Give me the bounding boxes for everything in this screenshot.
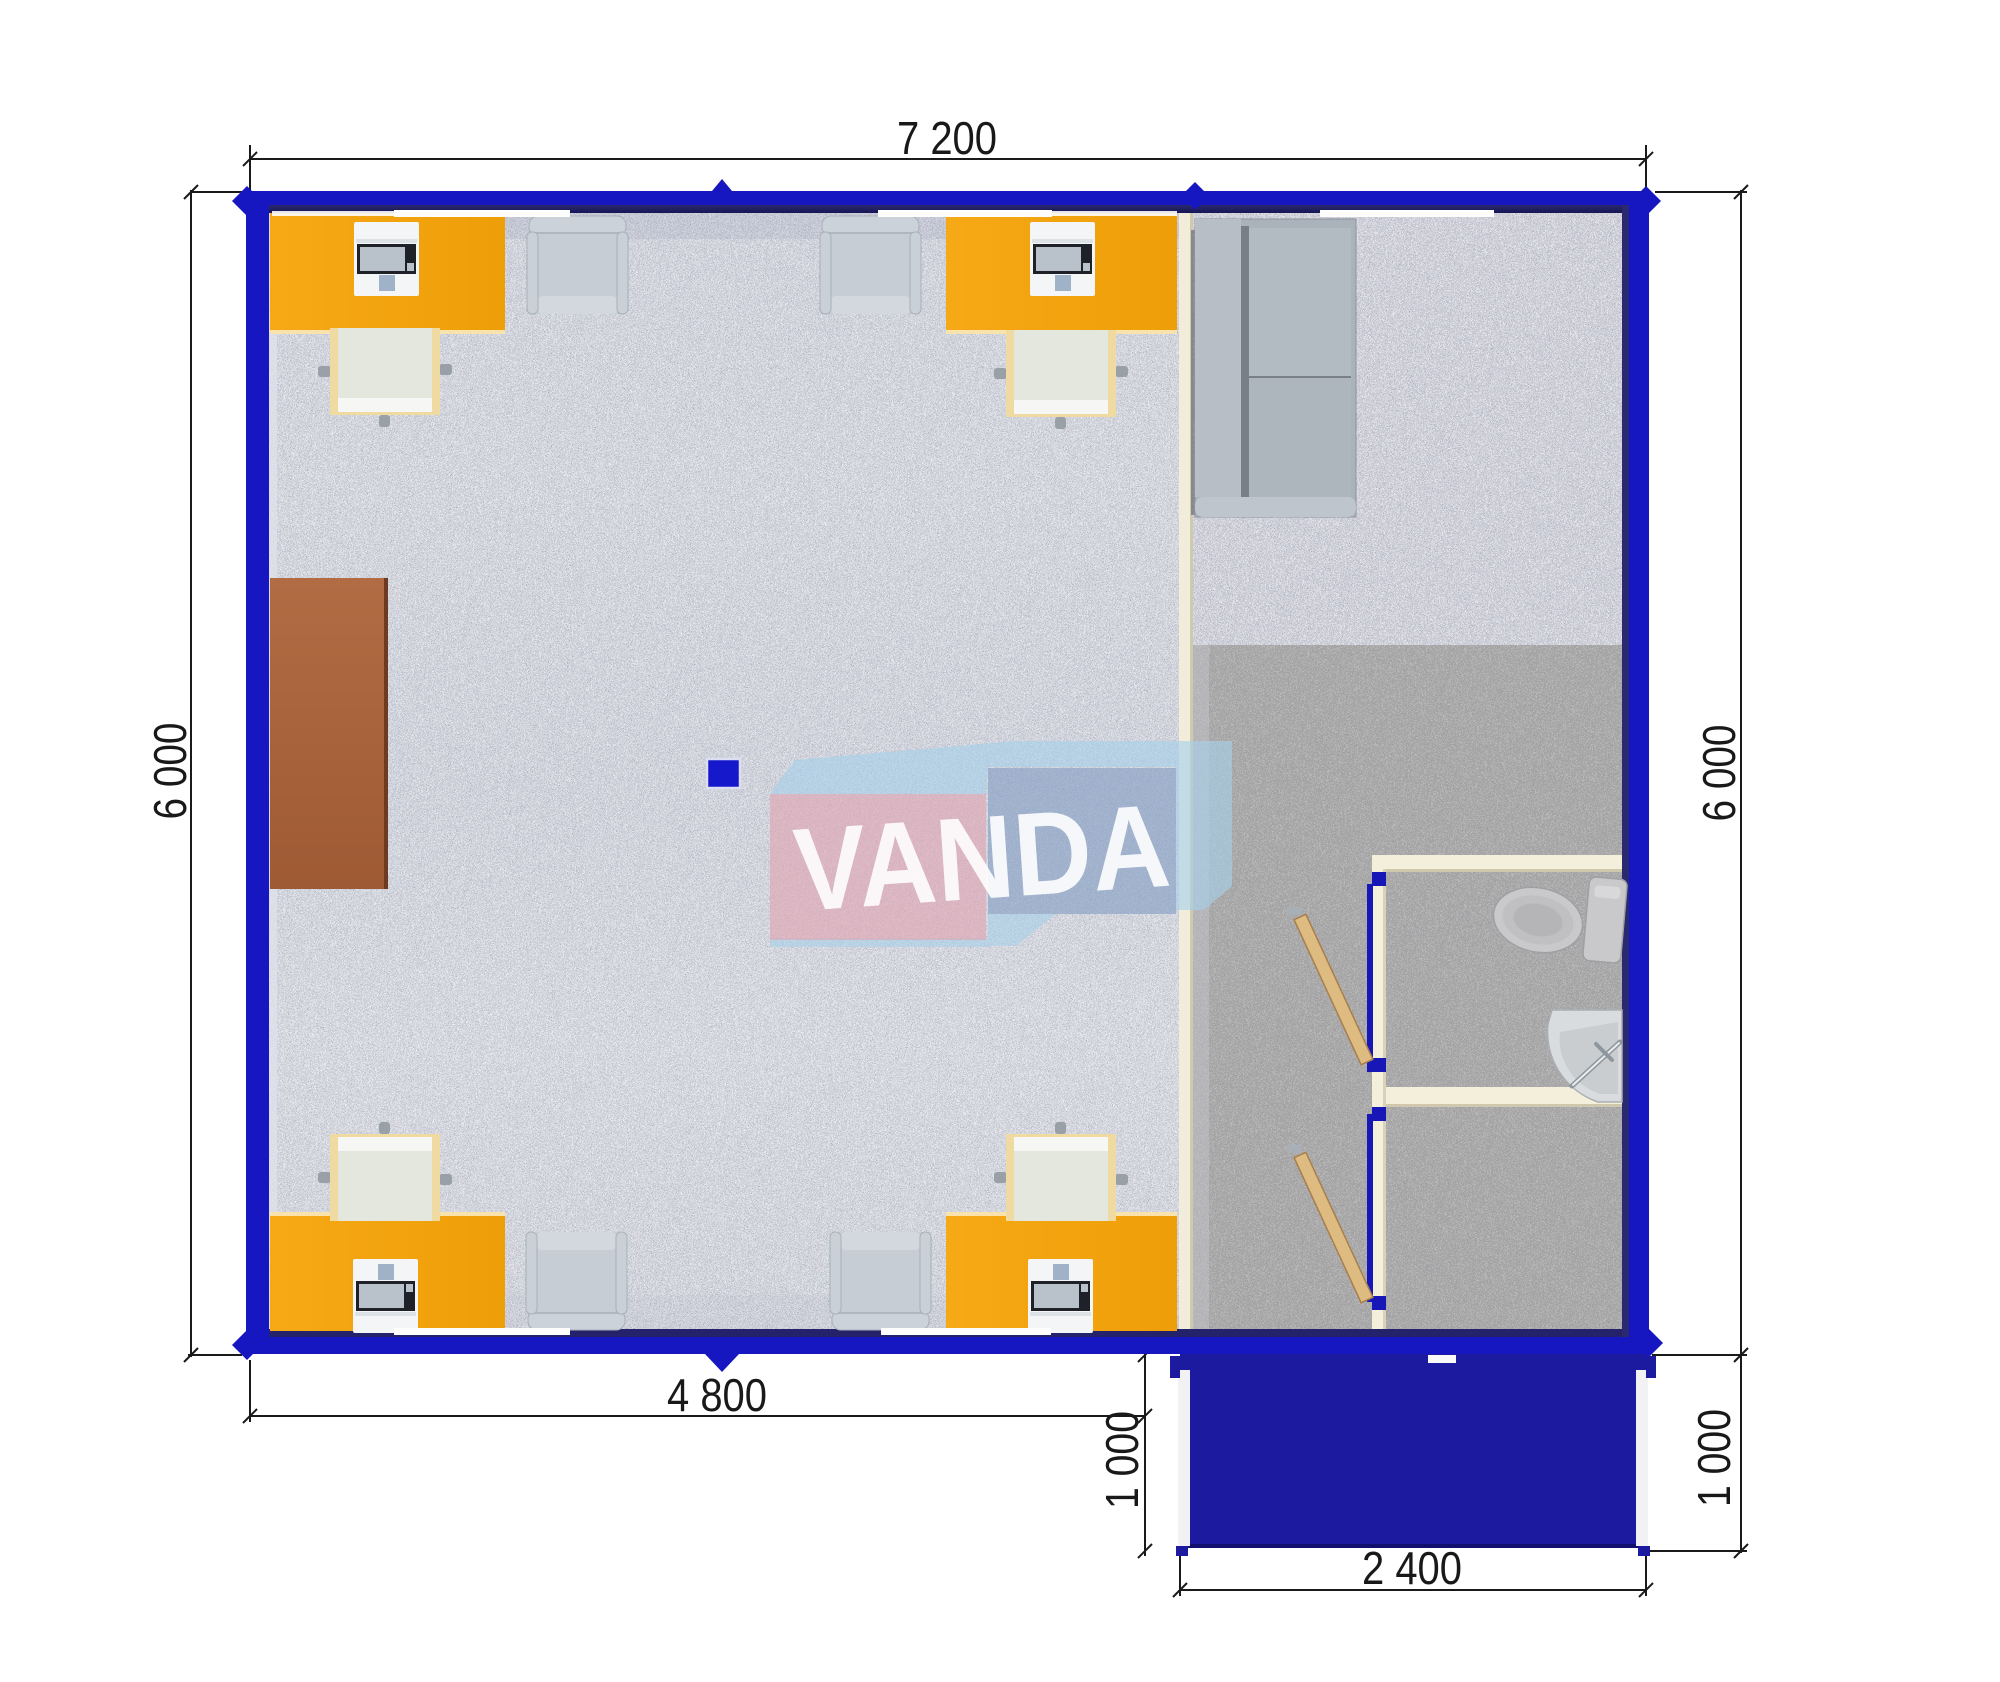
svg-text:1 000: 1 000 xyxy=(1688,1409,1740,1507)
svg-text:7 200: 7 200 xyxy=(897,112,997,164)
svg-text:6 000: 6 000 xyxy=(1693,725,1745,822)
svg-text:1 000: 1 000 xyxy=(1096,1411,1148,1509)
svg-text:VANDA: VANDA xyxy=(790,780,1174,937)
svg-text:4 800: 4 800 xyxy=(667,1369,767,1421)
svg-text:2 400: 2 400 xyxy=(1362,1542,1462,1594)
svg-text:6 000: 6 000 xyxy=(144,723,196,820)
